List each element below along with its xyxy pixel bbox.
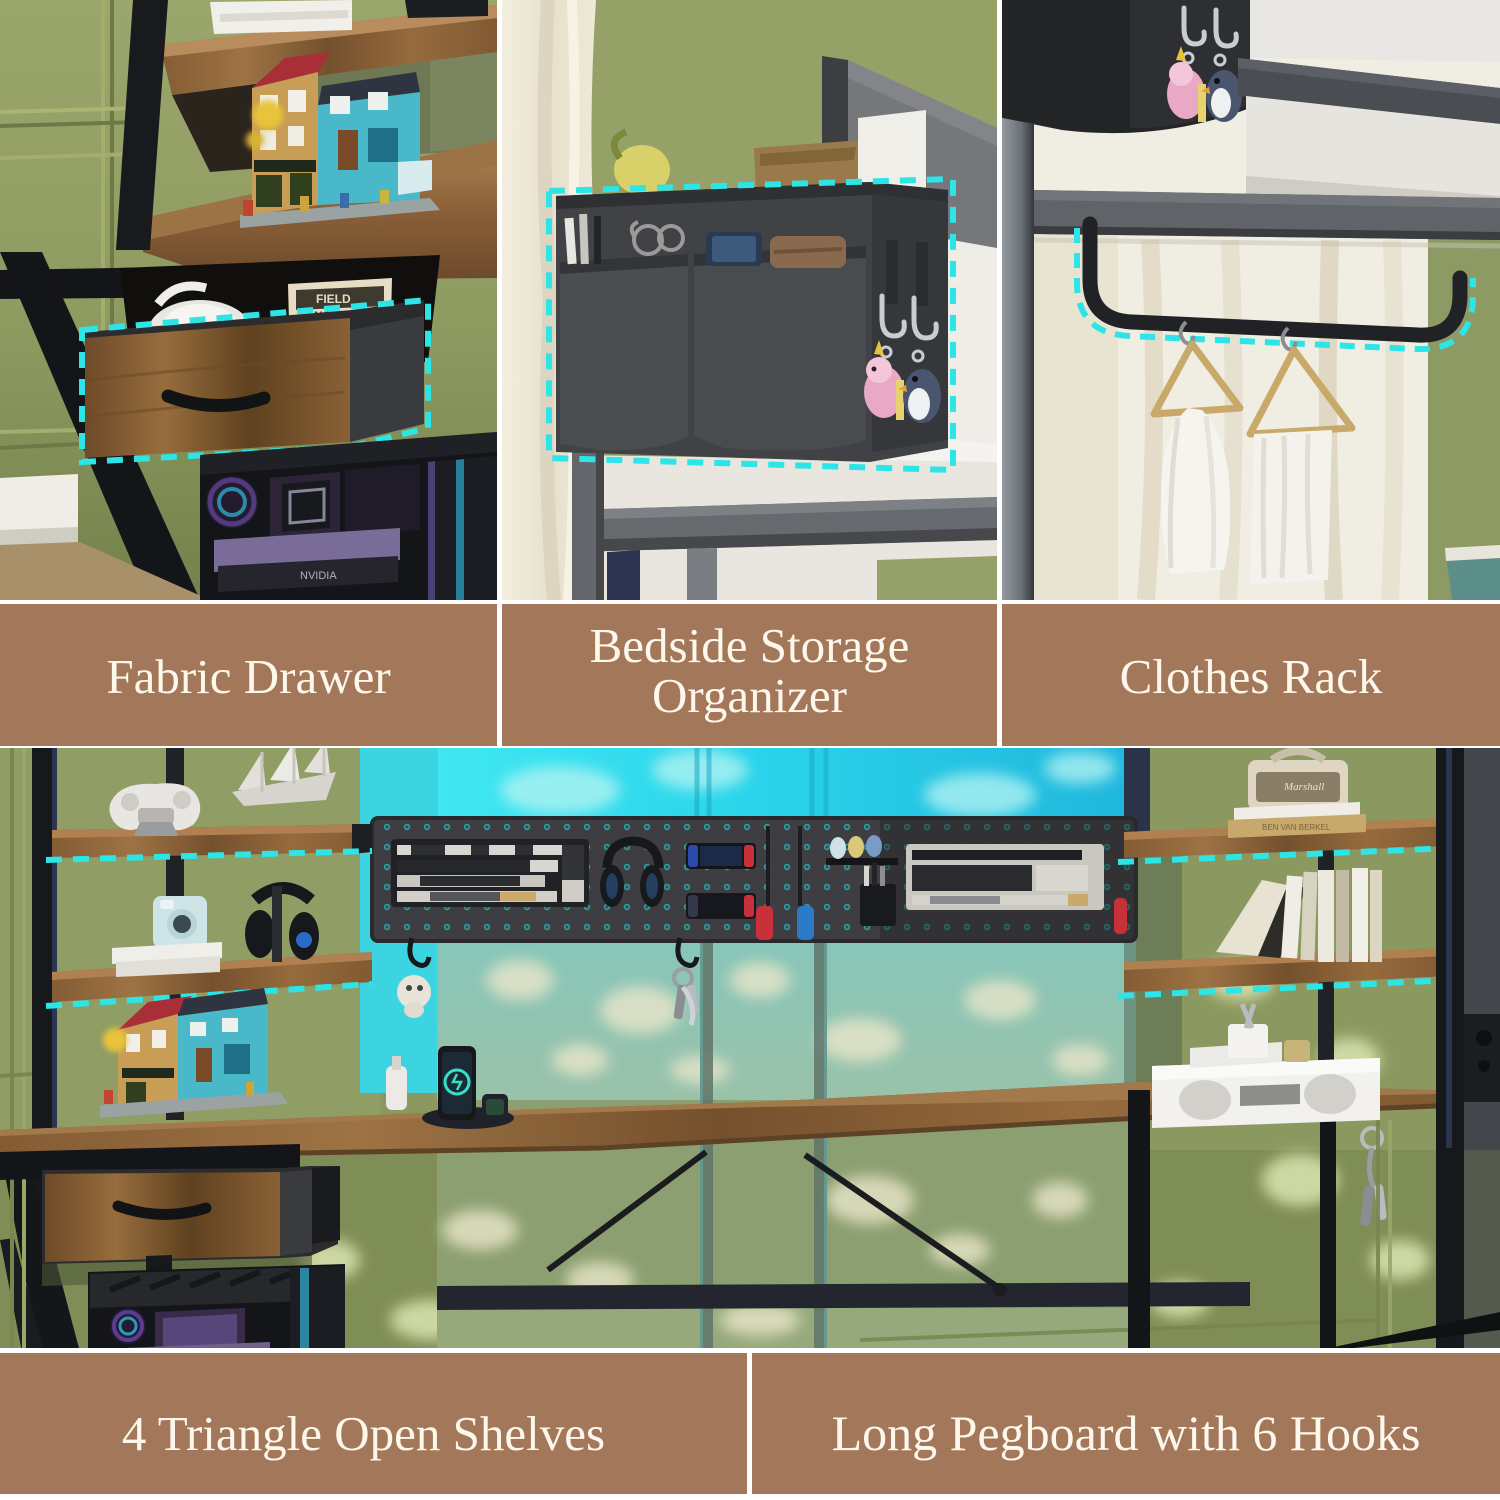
svg-text:BEN VAN BERKEL: BEN VAN BERKEL — [1262, 823, 1331, 832]
svg-text:Marshall: Marshall — [1283, 781, 1324, 793]
svg-text:FIELD: FIELD — [316, 292, 351, 306]
svg-text:NVIDIA: NVIDIA — [300, 570, 337, 582]
